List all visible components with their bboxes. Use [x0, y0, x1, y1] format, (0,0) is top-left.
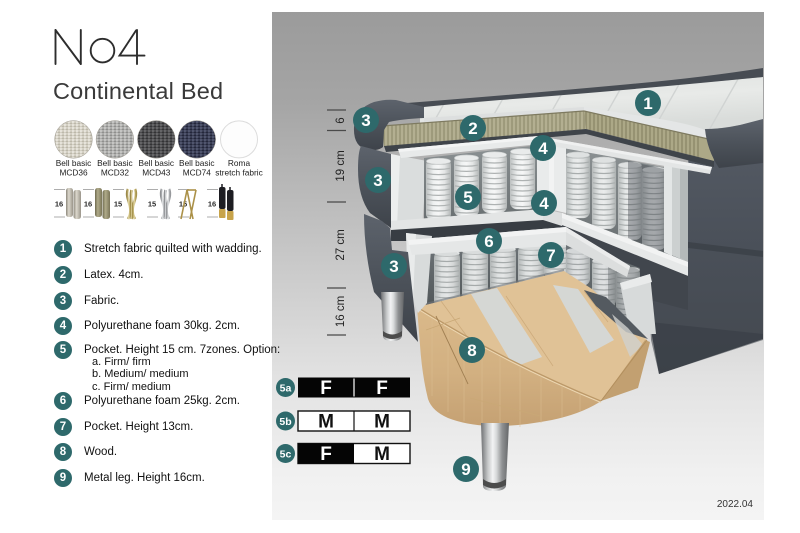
svg-text:5a: 5a [280, 383, 292, 395]
svg-text:MCD43: MCD43 [142, 168, 171, 178]
svg-text:3: 3 [389, 257, 398, 276]
svg-text:15: 15 [114, 200, 122, 209]
svg-text:27 cm: 27 cm [335, 229, 347, 260]
svg-text:19 cm: 19 cm [335, 150, 347, 181]
svg-text:7: 7 [546, 246, 555, 265]
svg-text:2022.04: 2022.04 [717, 499, 754, 510]
svg-text:MCD32: MCD32 [101, 168, 130, 178]
svg-text:F: F [376, 378, 388, 399]
svg-text:15: 15 [148, 200, 156, 209]
svg-text:M: M [318, 412, 334, 433]
svg-text:MCD36: MCD36 [59, 168, 88, 178]
svg-text:MCD74: MCD74 [183, 168, 212, 178]
svg-text:stretch fabric: stretch fabric [215, 168, 263, 178]
svg-text:1: 1 [643, 94, 652, 113]
svg-text:6: 6 [335, 117, 347, 123]
svg-text:2: 2 [468, 119, 477, 138]
svg-text:3: 3 [361, 111, 370, 130]
svg-text:M: M [374, 444, 390, 465]
svg-text:16: 16 [55, 200, 63, 209]
svg-text:Bell basic: Bell basic [56, 158, 92, 168]
svg-text:F: F [320, 444, 332, 465]
svg-text:9: 9 [461, 460, 470, 479]
svg-text:5: 5 [463, 188, 472, 207]
svg-text:16 cm: 16 cm [335, 296, 347, 327]
svg-text:M: M [374, 412, 390, 433]
svg-text:Bell basic: Bell basic [97, 158, 133, 168]
svg-text:16: 16 [84, 200, 92, 209]
svg-text:4: 4 [538, 139, 548, 158]
svg-text:Roma: Roma [228, 158, 251, 168]
svg-text:Bell basic: Bell basic [179, 158, 215, 168]
svg-text:F: F [320, 378, 332, 399]
svg-text:8: 8 [467, 341, 476, 360]
svg-text:Bell basic: Bell basic [139, 158, 175, 168]
svg-text:3: 3 [373, 171, 382, 190]
svg-text:16: 16 [208, 200, 216, 209]
svg-text:5b: 5b [279, 416, 291, 428]
svg-text:6: 6 [484, 232, 493, 251]
svg-text:4: 4 [539, 194, 549, 213]
svg-text:5c: 5c [280, 449, 292, 461]
